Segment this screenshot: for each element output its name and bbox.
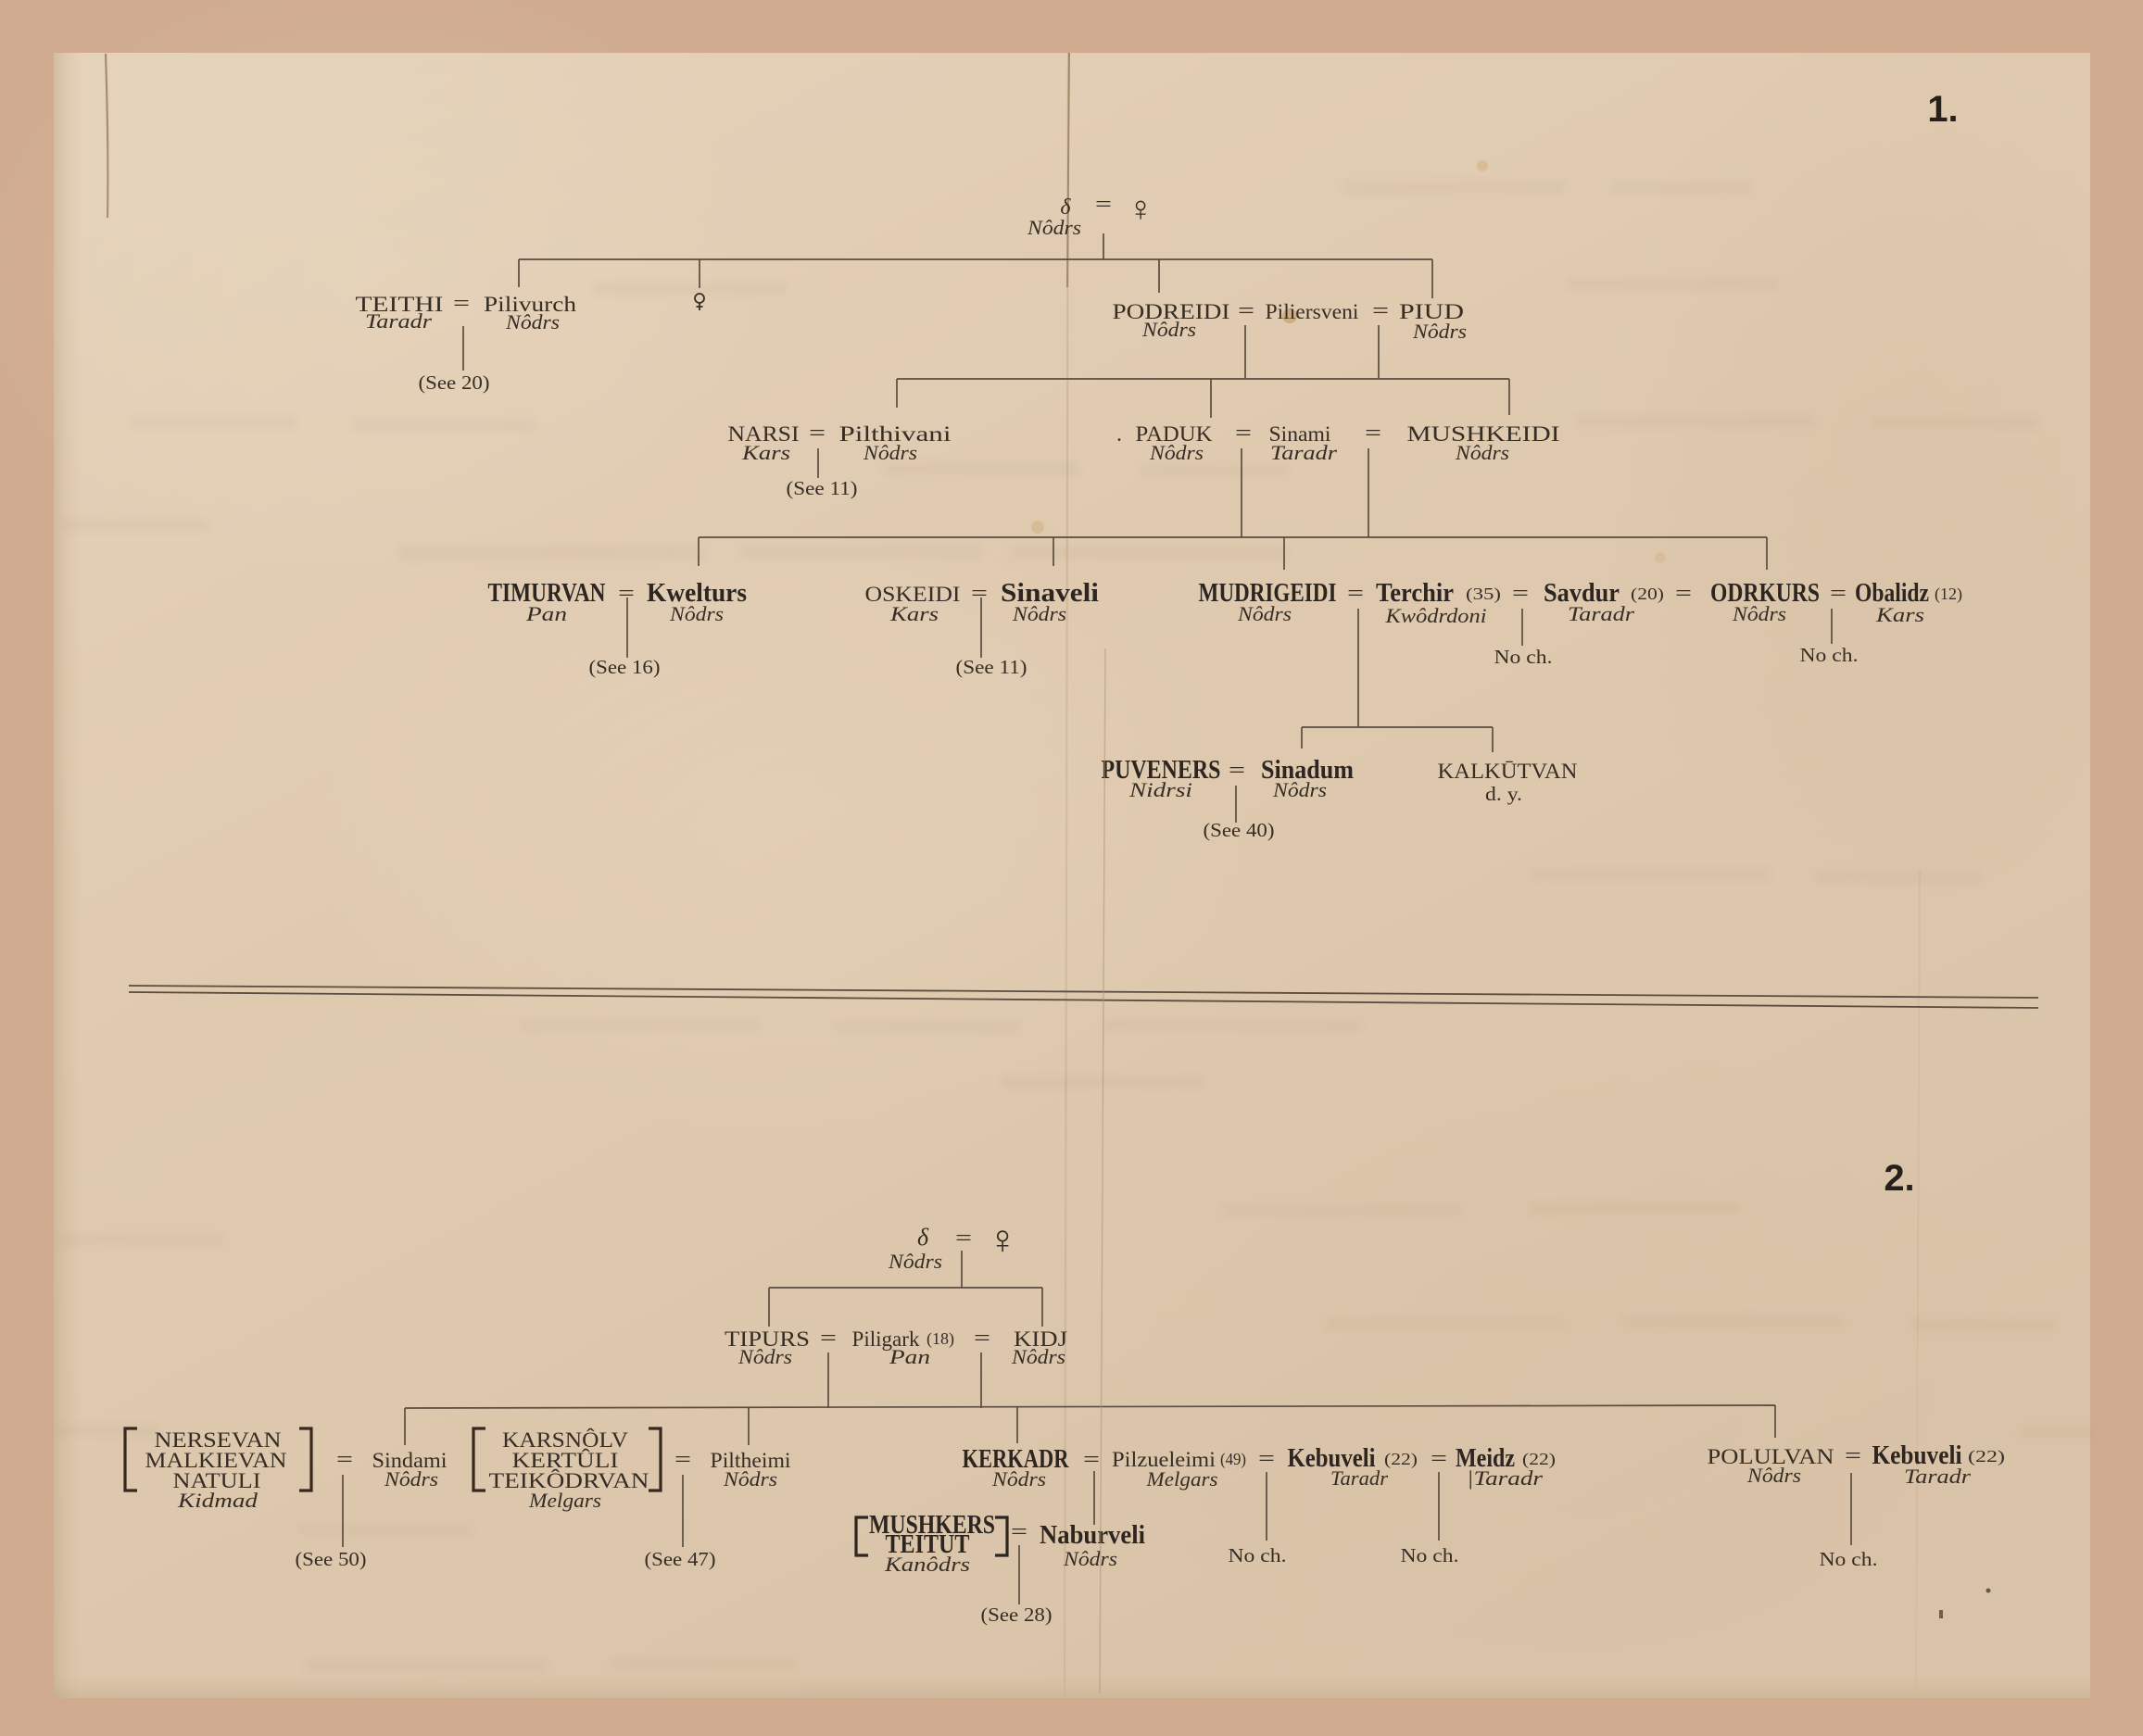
svg-text:=: =: [1011, 1520, 1027, 1544]
svg-text:(See 11): (See 11): [956, 656, 1027, 678]
svg-text:=: =: [1095, 193, 1112, 217]
svg-text:=: =: [1229, 759, 1245, 783]
svg-text:|Taradr: |Taradr: [1467, 1466, 1544, 1490]
svg-text:Nôdrs: Nôdrs: [1027, 216, 1081, 239]
svg-text:(35): (35): [1466, 585, 1501, 604]
svg-text:Nôdrs: Nôdrs: [1272, 778, 1327, 801]
svg-text:Kidmad: Kidmad: [177, 1489, 258, 1512]
svg-text:Kars: Kars: [741, 441, 790, 464]
svg-text:d. y.: d. y.: [1485, 783, 1522, 805]
svg-text:Nôdrs: Nôdrs: [1011, 1345, 1065, 1368]
svg-text:=: =: [1431, 1447, 1447, 1471]
svg-text:(See 50): (See 50): [296, 1548, 367, 1570]
svg-text:Nôdrs: Nôdrs: [1455, 441, 1509, 464]
svg-text:Nôdrs: Nôdrs: [1012, 602, 1066, 625]
svg-text:(See 11): (See 11): [787, 477, 858, 499]
svg-text:Kwôdrdoni: Kwôdrdoni: [1384, 604, 1486, 627]
svg-text:(22): (22): [1384, 1450, 1418, 1469]
svg-text:Taradr: Taradr: [1270, 441, 1338, 464]
svg-text:Naburveli: Naburveli: [1040, 1520, 1145, 1550]
svg-text:1.: 1.: [1927, 89, 1958, 130]
svg-text:Nidrsi: Nidrsi: [1128, 778, 1192, 801]
svg-text:=: =: [1347, 582, 1364, 606]
svg-text:(18): (18): [927, 1329, 954, 1349]
svg-text:(20): (20): [1631, 585, 1664, 604]
svg-text:Nôdrs: Nôdrs: [723, 1467, 777, 1491]
svg-text:Nôdrs: Nôdrs: [737, 1345, 792, 1368]
svg-text:Nôdrs: Nôdrs: [1063, 1547, 1117, 1570]
svg-text:Nôdrs: Nôdrs: [669, 602, 724, 625]
svg-text:=: =: [1258, 1447, 1275, 1471]
svg-text:(22): (22): [1968, 1447, 2005, 1466]
svg-text:Nôdrs: Nôdrs: [1732, 602, 1786, 625]
svg-text:No ch.: No ch.: [1800, 644, 1859, 666]
svg-text:=: =: [1845, 1444, 1861, 1468]
svg-text:No ch.: No ch.: [1494, 646, 1553, 668]
svg-text:Nôdrs: Nôdrs: [991, 1467, 1046, 1491]
svg-text:No ch.: No ch.: [1229, 1544, 1287, 1566]
svg-text:=: =: [453, 292, 470, 316]
svg-text:Pan: Pan: [525, 602, 567, 625]
svg-text:(See 28): (See 28): [981, 1604, 1053, 1626]
svg-text:=: =: [1235, 421, 1252, 446]
svg-text:♀: ♀: [988, 1217, 1018, 1263]
svg-text:Nôdrs: Nôdrs: [863, 441, 917, 464]
svg-text:=: =: [1365, 421, 1381, 446]
svg-text:2.: 2.: [1884, 1158, 1914, 1199]
svg-text:Nôdrs: Nôdrs: [505, 310, 560, 333]
svg-text:=: =: [1083, 1448, 1100, 1472]
svg-text:=: =: [955, 1227, 972, 1251]
svg-text:Nôdrs: Nôdrs: [1237, 602, 1292, 625]
svg-text:(See 40): (See 40): [1204, 819, 1275, 841]
svg-text:Melgars: Melgars: [528, 1489, 601, 1512]
svg-text:Nôdrs: Nôdrs: [1412, 320, 1467, 343]
svg-text:Taradr: Taradr: [1568, 602, 1635, 625]
svg-text:=: =: [618, 582, 635, 606]
svg-text:(See 20): (See 20): [419, 371, 490, 394]
svg-text:♀: ♀: [1128, 190, 1154, 229]
svg-text:=: =: [971, 582, 988, 606]
svg-text:=: =: [1675, 582, 1692, 606]
svg-text:=: =: [809, 421, 826, 446]
svg-text:Nôdrs: Nôdrs: [1141, 318, 1196, 341]
svg-text:(See 47): (See 47): [645, 1548, 716, 1570]
svg-text:=: =: [1830, 582, 1847, 606]
svg-text:Kanôdrs: Kanôdrs: [884, 1553, 970, 1576]
svg-text:δ: δ: [917, 1224, 929, 1251]
svg-text:No ch.: No ch.: [1401, 1544, 1459, 1566]
svg-text:Kars: Kars: [889, 602, 939, 625]
svg-text:=: =: [1372, 299, 1389, 323]
svg-text:=: =: [1512, 582, 1529, 606]
svg-text:=: =: [1238, 299, 1254, 323]
svg-text:Taradr: Taradr: [1904, 1465, 1972, 1488]
svg-text:Kars: Kars: [1875, 603, 1924, 626]
svg-text:KALKŪTVAN: KALKŪTVAN: [1438, 760, 1578, 783]
svg-text:Taradr: Taradr: [365, 309, 433, 333]
svg-text:(49): (49): [1220, 1450, 1246, 1469]
svg-text:Nôdrs: Nôdrs: [1746, 1464, 1801, 1487]
svg-text:=: =: [336, 1448, 353, 1472]
svg-text:.: .: [1116, 422, 1122, 446]
svg-text:Melgars: Melgars: [1145, 1467, 1217, 1491]
svg-text:Nôdrs: Nôdrs: [888, 1250, 942, 1273]
svg-text:(See 16): (See 16): [589, 656, 661, 678]
svg-text:Taradr: Taradr: [1330, 1466, 1388, 1490]
svg-text:Pan: Pan: [889, 1345, 930, 1368]
svg-text:=: =: [820, 1327, 837, 1351]
svg-text:Nôdrs: Nôdrs: [384, 1467, 438, 1491]
svg-text:No ch.: No ch.: [1820, 1548, 1878, 1570]
svg-text:(12): (12): [1935, 585, 1962, 604]
svg-text:Piliersveni: Piliersveni: [1266, 300, 1359, 323]
svg-text:Nôdrs: Nôdrs: [1149, 441, 1204, 464]
svg-text:=: =: [674, 1448, 691, 1472]
svg-text:=: =: [974, 1327, 990, 1351]
